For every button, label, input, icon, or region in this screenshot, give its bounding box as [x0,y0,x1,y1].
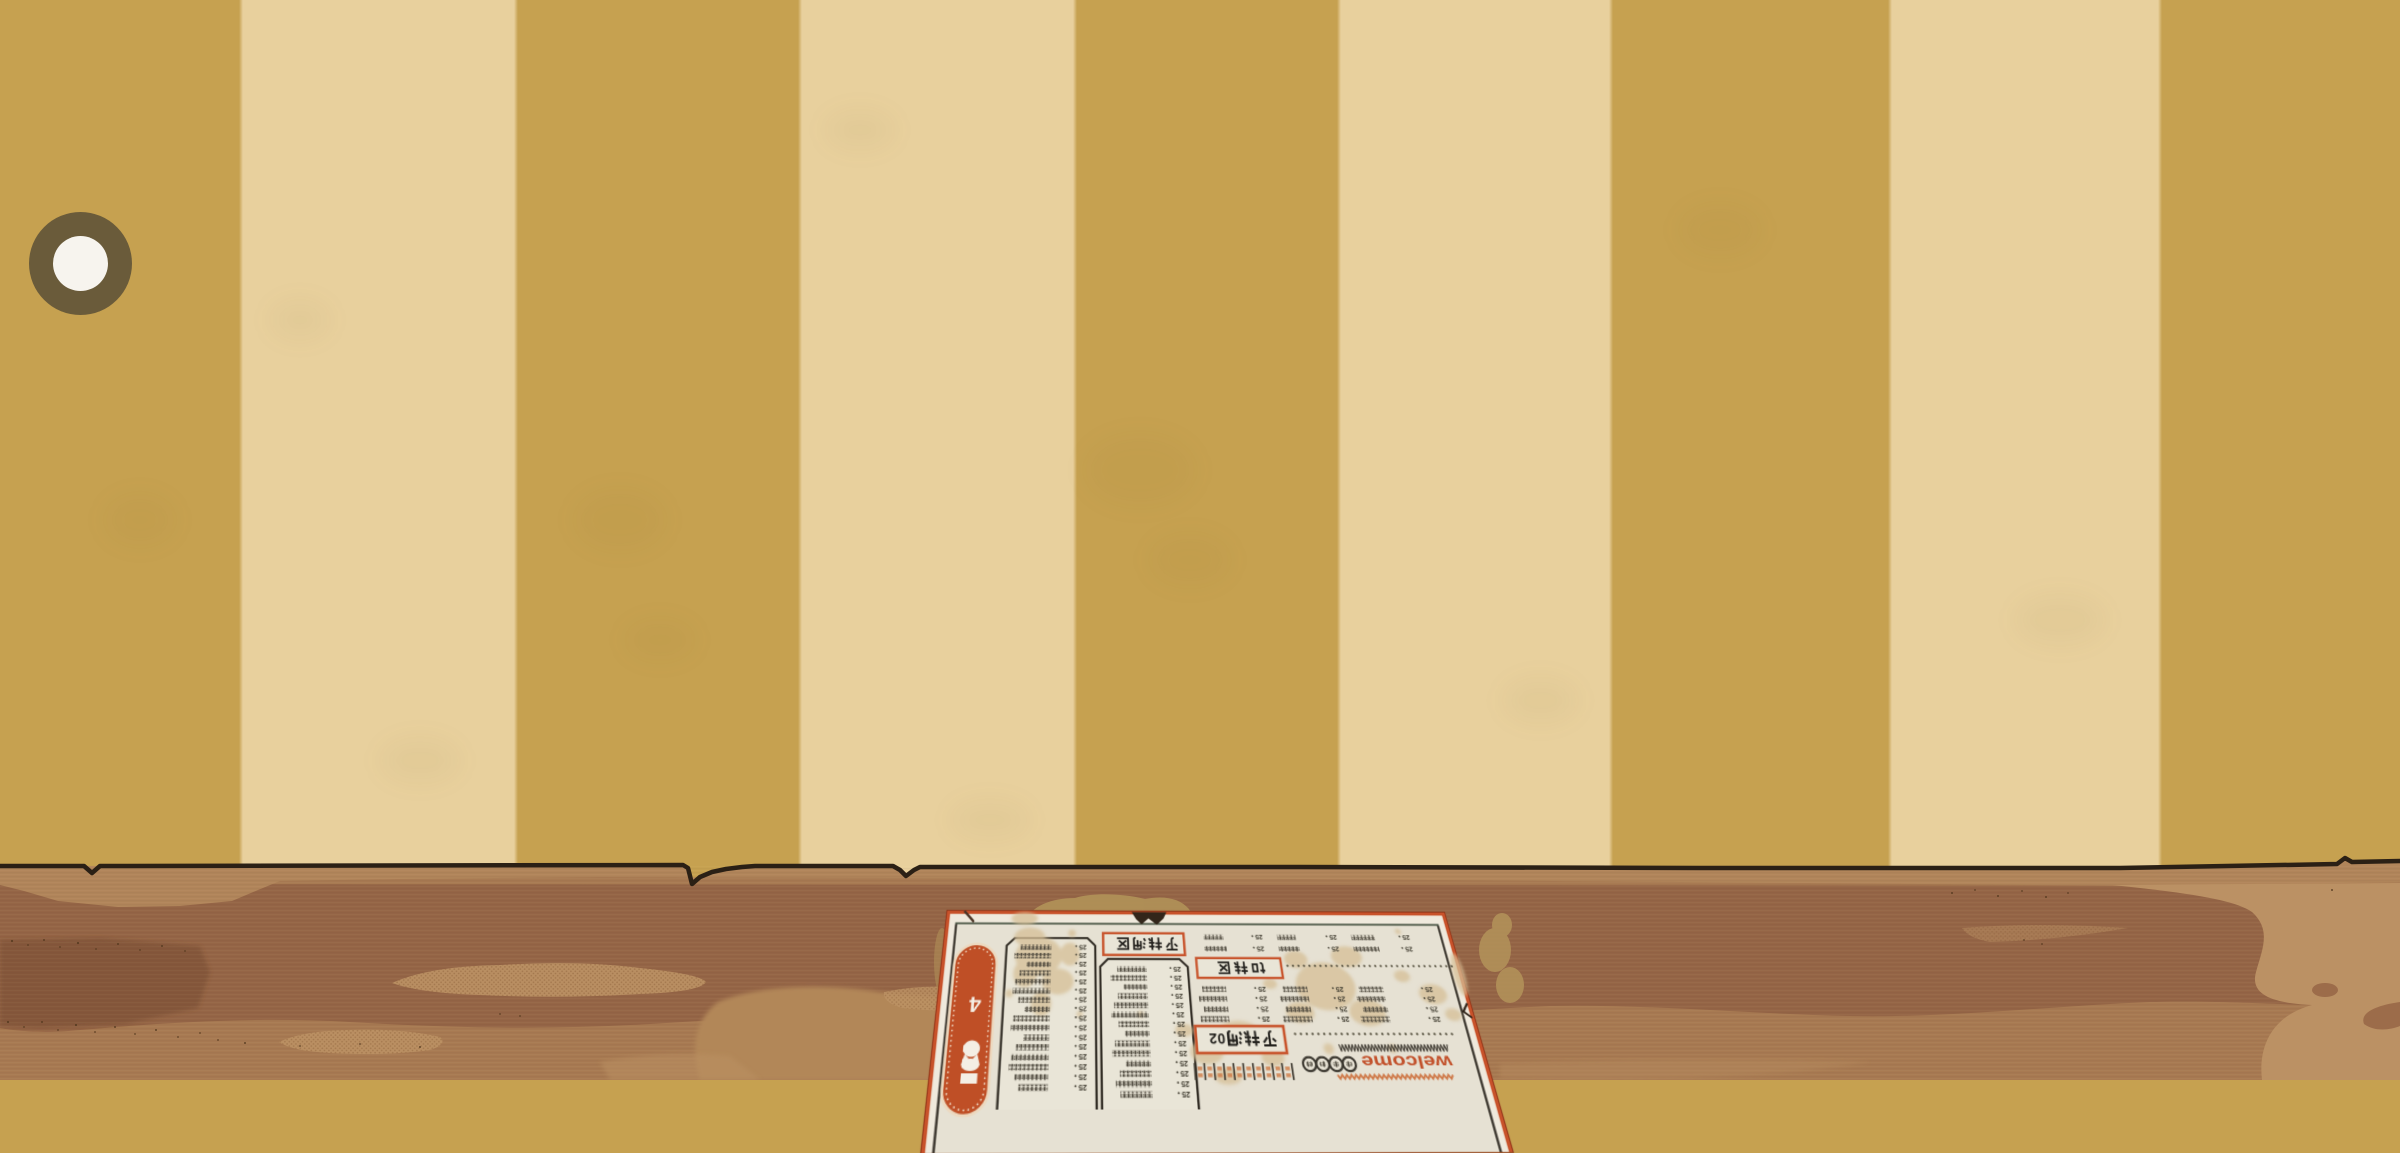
svg-text:25: 25 [1259,994,1268,1001]
svg-text:25: 25 [1078,1082,1086,1090]
svg-text:25: 25 [1079,986,1087,993]
svg-text:25: 25 [1079,943,1087,950]
svg-text:25: 25 [1328,933,1337,939]
svg-text:25: 25 [1079,1042,1087,1050]
svg-text:25: 25 [1078,1062,1086,1070]
svg-text:25: 25 [1177,1019,1186,1026]
svg-text:25: 25 [1181,1089,1190,1097]
svg-text:25: 25 [1340,1014,1349,1021]
svg-text:25: 25 [1079,1033,1087,1041]
svg-text:25: 25 [1175,991,1183,998]
svg-text:25: 25 [1179,1058,1188,1066]
svg-text:25: 25 [1179,1048,1188,1056]
svg-text:25: 25 [1257,985,1266,992]
svg-text:25: 25 [1079,995,1087,1002]
svg-text:25: 25 [1178,1039,1187,1047]
svg-text:25: 25 [1429,1005,1439,1012]
svg-text:25: 25 [1337,995,1346,1002]
svg-text:25: 25 [1174,974,1182,981]
svg-text:25: 25 [1180,1068,1189,1076]
svg-text:25: 25 [1079,977,1087,984]
svg-text:25: 25 [1173,965,1181,972]
svg-text:4: 4 [968,992,982,1016]
svg-text:25: 25 [1079,951,1087,958]
svg-text:25: 25 [1335,985,1344,992]
svg-text:25: 25 [1079,960,1087,967]
svg-text:25: 25 [1431,1015,1441,1022]
svg-text:25: 25 [1255,933,1263,940]
svg-text:25: 25 [1078,1072,1086,1080]
svg-text:25: 25 [1079,1023,1087,1030]
svg-text:02: 02 [1208,1030,1226,1046]
svg-text:25: 25 [1339,1004,1348,1011]
svg-text:25: 25 [1261,1014,1270,1021]
svg-text:welcome: welcome [1360,1052,1456,1072]
svg-text:25: 25 [1175,1001,1183,1008]
svg-text:25: 25 [1260,1004,1269,1011]
svg-text:25: 25 [1331,945,1340,952]
svg-text:25: 25 [1079,1004,1087,1011]
svg-text:25: 25 [1177,1029,1186,1037]
svg-text:25: 25 [1079,1014,1087,1021]
svg-text:25: 25 [1079,1052,1087,1060]
svg-text:25: 25 [1256,944,1264,951]
svg-text:25: 25 [1079,969,1087,976]
svg-text:25: 25 [1176,1010,1185,1017]
svg-text:25: 25 [1174,982,1182,989]
